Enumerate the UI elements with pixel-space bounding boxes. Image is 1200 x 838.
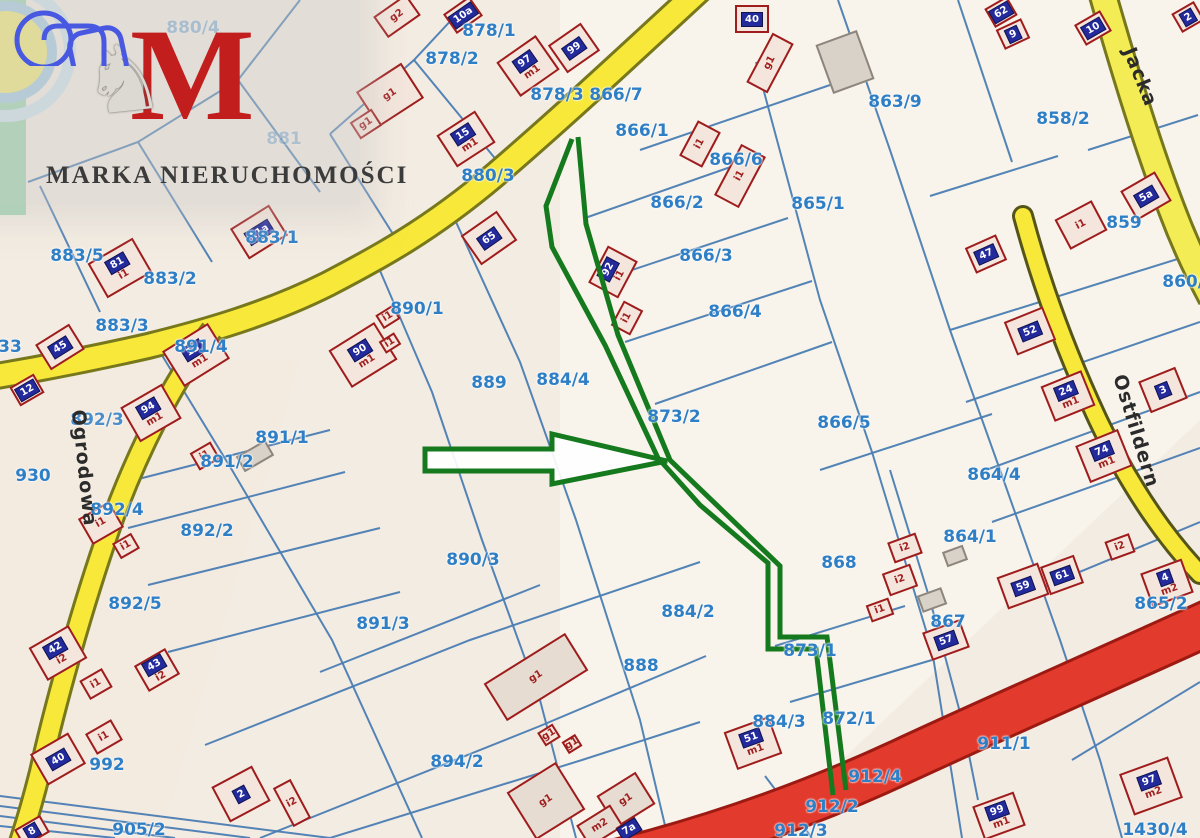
agency-name: MARKA NIERUCHOMOŚCI [46,162,356,190]
parcel-number-label: 884/3 [752,712,806,732]
parcel-number-label: 884/2 [661,602,715,622]
parcel-number-label: 890/1 [390,299,444,319]
parcel-number-label: 858/2 [1036,109,1090,129]
street-name-label: Ostfildern [1108,372,1163,491]
parcel-number-label: 912/4 [848,767,902,787]
parcel-number-label: 867 [930,612,966,632]
parcel-number-label: 883/5 [50,246,104,266]
parcel-number-label: 930 [15,466,51,486]
parcel-number-label: 894/2 [430,752,484,772]
parcel-number-label: 892/5 [108,594,162,614]
parcel-number-label: 880/3 [461,166,515,186]
parcel-number-label: 884/4 [536,370,590,390]
parcel-number-label: 891/4 [174,337,228,357]
parcel-number-label: 883/2 [143,269,197,289]
parcel-number-label: 860/1 [1162,272,1200,292]
parcel-number-label: 889 [471,373,507,393]
parcel-number-label: 891/3 [356,614,410,634]
parcel-number-label: 992 [89,755,125,775]
parcel-number-label: 873/1 [783,641,837,661]
parcel-number-label: 912/3 [774,821,828,838]
parcel-number-label: 912/2 [805,797,859,817]
parcel-number-label: 863/9 [868,92,922,112]
parcel-number-label: 866/2 [650,193,704,213]
parcel-number-label: 905/2 [112,820,166,838]
parcel-number-label: 868 [821,553,857,573]
parcel-number-label: 866/7 [589,85,643,105]
parcel-number-label: 866/1 [615,121,669,141]
parcel-number-label: 891/2 [200,452,254,472]
parcel-number-label: 890/3 [446,550,500,570]
parcel-number-label: 866/3 [679,246,733,266]
map-canvas[interactable]: g210ag1g197m19915m111a81i113m1451294m1i1… [0,0,1200,838]
parcel-number-label: 864/1 [943,527,997,547]
parcel-number-label: 872/1 [822,709,876,729]
parcel-number-label: 873/2 [647,407,701,427]
parcel-number-label: 883/1 [245,228,299,248]
parcel-number-label: 33 [0,337,22,357]
watermark-monogram-icon [0,0,150,66]
parcel-number-label: 866/5 [817,413,871,433]
parcel-number-label: 878/1 [462,21,516,41]
parcel-number-label: 859 [1106,213,1142,233]
parcel-number-label: 892/2 [180,521,234,541]
parcel-number-label: 1430/4 [1122,820,1187,838]
street-name-label: Jacka [1118,44,1161,109]
parcel-number-label: 866/6 [709,150,763,170]
parcel-number-label: 911/1 [977,734,1031,754]
parcel-number-label: 864/4 [967,465,1021,485]
parcel-number-label: 866/4 [708,302,762,322]
parcel-number-label: 888 [623,656,659,676]
parcel-number-label: 865/1 [791,194,845,214]
parcel-number-label: 891/1 [255,428,309,448]
parcel-number-label: 878/3 [530,85,584,105]
parcel-number-label: 865/2 [1134,594,1188,614]
parcel-number-label: 878/2 [425,49,479,69]
parcel-number-label: 883/3 [95,316,149,336]
